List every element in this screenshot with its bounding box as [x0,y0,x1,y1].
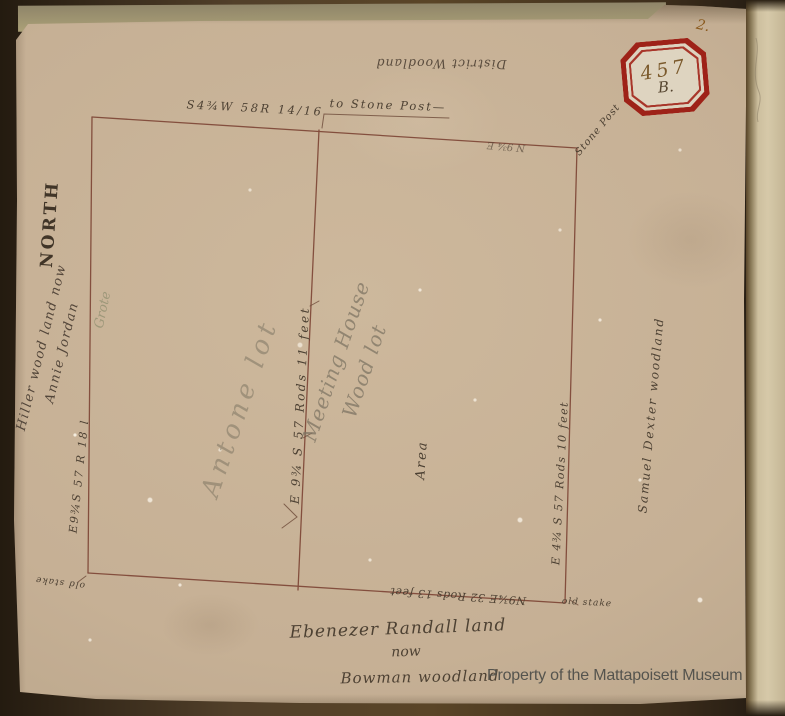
photographed-survey-map: 457 B. 2. District Woodland S4¾W 58R 14/… [0,0,785,716]
museum-watermark: Property of the Mattapoisett Museum [487,667,742,685]
stone-post-bracket [322,114,449,128]
label-area: Area [413,440,431,480]
label-district-woodland: District Woodland [375,56,506,72]
archive-stamp: 457 B. [619,36,711,117]
stamp-thin-red-line: 457 B. [628,45,703,109]
stamp-number: 457 [639,55,690,85]
stamp-face: 457 B. [630,47,700,107]
boundary-east [565,148,577,603]
label-now: now [391,643,421,660]
caret-mark [282,504,297,528]
stamp-inner-ring: 457 B. [624,42,705,112]
boundary-west [88,117,92,573]
label-bowman-woodland: Bowman woodland [340,667,499,688]
edge-page-script-squiggle [755,38,760,122]
